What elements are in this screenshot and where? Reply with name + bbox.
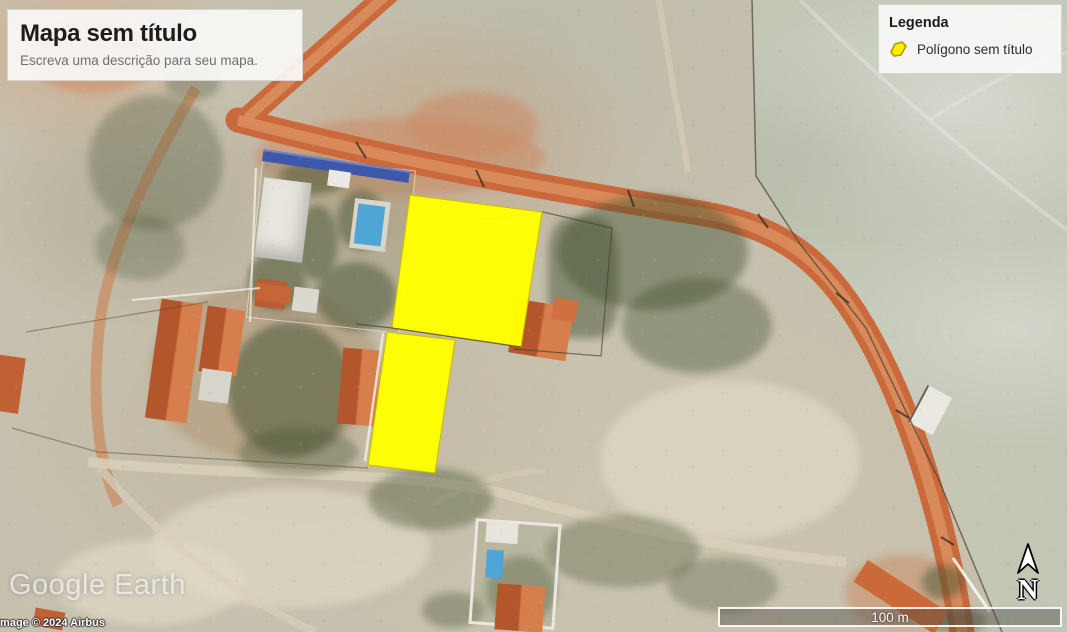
scale-bar: 100 m (718, 607, 1062, 627)
untitled-polygon-lower[interactable] (368, 332, 455, 473)
white-house (254, 177, 311, 262)
footpath (658, 0, 688, 172)
legend-item-polygon[interactable]: Polígono sem título (889, 40, 1051, 59)
patio (292, 287, 320, 314)
scrub (95, 215, 185, 280)
map-title-box: Mapa sem título Escreva uma descrição pa… (7, 9, 303, 81)
scrub (368, 468, 493, 530)
trees (922, 565, 964, 599)
polygon-icon (889, 40, 908, 59)
copyright-text: Image © 2024 Airbus (0, 617, 105, 629)
scrub (238, 428, 358, 476)
scrub (668, 558, 778, 613)
orange-roof-building (494, 583, 545, 632)
white-shed (485, 522, 518, 544)
legend-item-label: Polígono sem título (917, 42, 1033, 57)
orange-roof-building (0, 354, 26, 414)
white-structure (327, 170, 351, 189)
swimming-pool (354, 204, 386, 247)
scrub (622, 278, 772, 373)
white-shed (198, 368, 232, 404)
legend: Legenda Polígono sem título (878, 4, 1062, 74)
map-description: Escreva uma descrição para seu mapa. (20, 53, 290, 68)
north-indicator: N (1008, 543, 1048, 603)
map-title: Mapa sem título (20, 21, 290, 46)
north-arrow-icon (1015, 543, 1041, 575)
orange-roof-wing (551, 297, 578, 322)
scrub (88, 95, 223, 230)
north-label: N (1008, 577, 1048, 603)
orange-roof-building (337, 347, 381, 426)
legend-title: Legenda (889, 15, 1051, 31)
red-soil-patch (408, 92, 538, 157)
satellite-map[interactable] (0, 0, 1067, 632)
swimming-pool (485, 549, 504, 578)
google-earth-view: Mapa sem título Escreva uma descrição pa… (0, 0, 1067, 632)
scale-bar-label: 100 m (871, 610, 909, 625)
google-earth-watermark: Google Earth (9, 569, 186, 602)
